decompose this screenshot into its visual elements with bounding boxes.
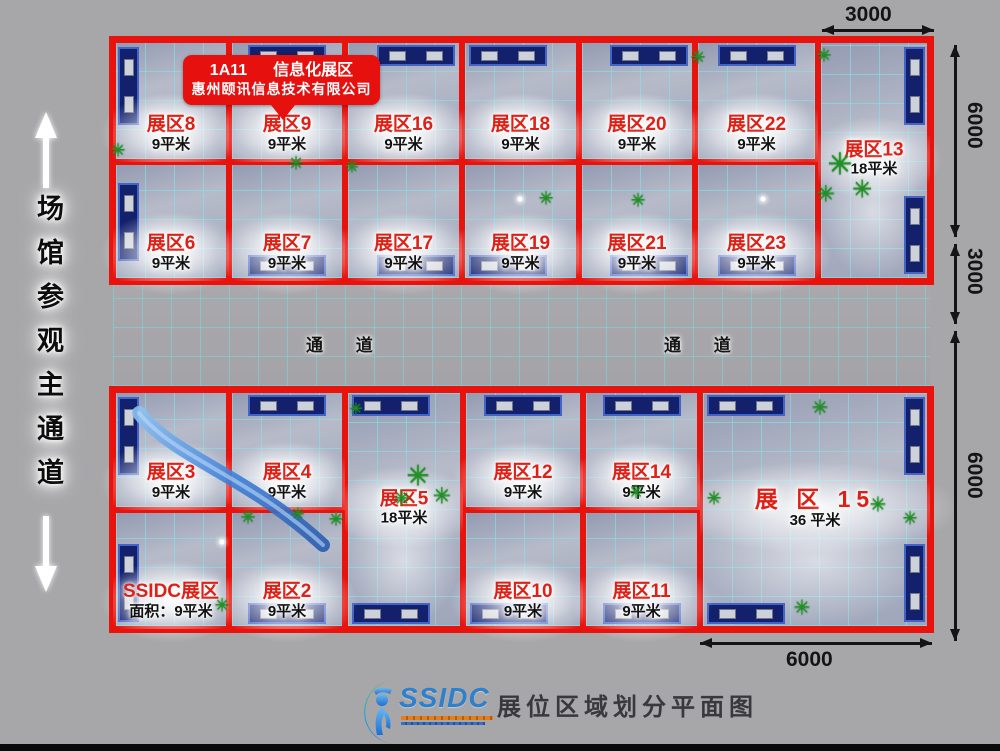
booth-area-label: 18平米 <box>348 510 460 528</box>
booth-label-group: 展区179平米 <box>348 233 459 273</box>
desk-furniture <box>904 47 925 125</box>
monitor-icon <box>124 409 134 426</box>
booth-name-label: 展 区 15 <box>703 486 927 512</box>
light-spot <box>518 197 523 202</box>
monitor-icon <box>622 51 639 61</box>
monitor-icon <box>426 51 443 61</box>
booth-label-group: 展区199平米 <box>465 233 576 273</box>
monitor-icon <box>481 51 498 61</box>
booth-area-label: 9平米 <box>586 603 697 621</box>
desk-furniture <box>469 45 547 66</box>
dimension-right-top: 6000 <box>962 102 986 149</box>
booth-name-label: 展区2 <box>232 581 342 603</box>
booth-zone-4: 展区49平米 <box>229 390 345 510</box>
booth-name-label: 展区17 <box>348 233 459 255</box>
booth-name-label: SSIDC展区 <box>116 581 226 603</box>
dimension-arrow-right-top <box>954 45 957 237</box>
desk-furniture <box>707 603 785 624</box>
aisle-label-right: 通 道 <box>664 331 745 356</box>
monitor-icon <box>659 51 676 61</box>
booth-zone-21: 展区219平米 <box>579 162 695 281</box>
light-spot <box>761 197 766 202</box>
booth-area-label: 9平米 <box>582 255 692 273</box>
booth-area-label: 9平米 <box>116 484 226 502</box>
booth-label-group: 展 区 1536 平米 <box>703 486 927 530</box>
booth-zone-22: 展区229平米 <box>695 40 818 162</box>
monitor-icon <box>401 401 418 411</box>
booth-name-label: 展区7 <box>232 233 342 255</box>
booth-zone-10: 展区109平米 <box>463 510 583 629</box>
callout-heading: 1A11 信息化展区 <box>210 61 353 81</box>
booth-zone-17: 展区179平米 <box>345 162 462 281</box>
booth-label-group: 展区518平米 <box>348 488 460 528</box>
monitor-icon <box>910 208 920 225</box>
booth-zone-19: 展区199平米 <box>462 162 579 281</box>
booth-zone-7: 展区79平米 <box>229 162 345 281</box>
booth-area-label: 9平米 <box>698 255 815 273</box>
central-aisle <box>113 285 930 386</box>
booth-label-group: 展区39平米 <box>116 462 226 502</box>
desk-furniture <box>352 395 430 416</box>
booth-name-label: 展区6 <box>116 233 226 255</box>
callout-zone-name: 信息化展区 <box>273 61 353 81</box>
booth-name-label: 展区5 <box>348 488 460 510</box>
dimension-bottom-width: 6000 <box>786 648 833 672</box>
booth-area-label: 9平米 <box>116 136 226 154</box>
booth-zone-20: 展区209平米 <box>579 40 695 162</box>
booth-area-label: 9平米 <box>116 255 226 273</box>
monitor-icon <box>719 401 736 411</box>
desk-furniture <box>610 45 688 66</box>
dimension-right-middle: 3000 <box>962 248 986 295</box>
booth-name-label: 展区3 <box>116 462 226 484</box>
booth-label-group: 展区89平米 <box>116 114 226 154</box>
main-aisle-label: 场馆参观主通道 <box>26 194 68 502</box>
monitor-icon <box>719 609 736 619</box>
booth-area-label: 9平米 <box>348 136 459 154</box>
booth-zone-13: 展区1318平米 <box>818 40 930 281</box>
booth-area-label: 9平米 <box>232 484 342 502</box>
booth-zone-18: 展区189平米 <box>462 40 579 162</box>
monitor-icon <box>496 401 513 411</box>
booth-zone-5: 展区518平米 <box>345 390 463 629</box>
booth-label-group: 展区119平米 <box>586 581 697 621</box>
monitor-icon <box>615 401 632 411</box>
booth-name-label: 展区18 <box>465 114 576 136</box>
booth-zone-23: 展区239平米 <box>695 162 818 281</box>
booth-zone-15: 展 区 1536 平米 <box>700 390 930 629</box>
callout-company-name: 惠州颐讯信息技术有限公司 <box>192 81 372 99</box>
booth-area-label: 18平米 <box>821 161 927 179</box>
booth-area-label: 9平米 <box>348 255 459 273</box>
desk-furniture <box>904 196 925 274</box>
desk-furniture <box>603 395 681 416</box>
desk-furniture <box>377 45 455 66</box>
monitor-icon <box>910 409 920 426</box>
ssidc-logo-icon <box>356 677 404 747</box>
booth-area-label: 9平米 <box>465 136 576 154</box>
booth-area-label: 9平米 <box>466 484 580 502</box>
booth-name-label: 展区12 <box>466 462 580 484</box>
logo-tagline <box>401 716 493 725</box>
booth-label-group: 展区1318平米 <box>821 139 927 179</box>
booth-area-label: 9平米 <box>232 136 342 154</box>
dimension-arrow-top <box>822 29 934 32</box>
monitor-icon <box>730 51 747 61</box>
up-arrow-icon <box>33 112 59 188</box>
booth-name-label: 展区16 <box>348 114 459 136</box>
booth-label-group: 展区49平米 <box>232 462 342 502</box>
booth-label-group: 展区219平米 <box>582 233 692 273</box>
booth-name-label: 展区21 <box>582 233 692 255</box>
desk-furniture <box>352 603 430 624</box>
booth-label-group: 展区189平米 <box>465 114 576 154</box>
booth-name-label: 展区19 <box>465 233 576 255</box>
monitor-icon <box>389 51 406 61</box>
booth-label-group: 展区239平米 <box>698 233 815 273</box>
booth-name-label: 展区8 <box>116 114 226 136</box>
monitor-icon <box>124 59 134 76</box>
booth-area-label: 9平米 <box>465 255 576 273</box>
ssidc-logo-text: SSIDC <box>399 682 490 714</box>
monitor-icon <box>767 51 784 61</box>
booth-zone-2: 展区29平米 <box>229 510 345 629</box>
booth-ssidc-zone: SSIDC展区面积：9平米 <box>113 510 229 629</box>
monitor-icon <box>518 51 535 61</box>
bottom-border-strip <box>0 744 1000 751</box>
monitor-icon <box>652 401 669 411</box>
monitor-icon <box>910 59 920 76</box>
light-spot <box>220 540 225 545</box>
booth-zone-3: 展区39平米 <box>113 390 229 510</box>
desk-furniture <box>718 45 796 66</box>
monitor-icon <box>910 96 920 113</box>
booth-area-label: 面积：9平米 <box>116 603 226 621</box>
floor-plan-image: 通 道 通 道 展区89平米展区99平米展区169平米展区189平米展区209平… <box>0 0 1000 751</box>
booth-zone-12: 展区129平米 <box>463 390 583 510</box>
booth-name-label: 展区10 <box>466 581 580 603</box>
booth-zone-11: 展区119平米 <box>583 510 700 629</box>
booth-area-label: 9平米 <box>698 136 815 154</box>
booth-name-label: 展区23 <box>698 233 815 255</box>
desk-furniture <box>904 544 925 622</box>
booth-area-label: 9平米 <box>232 255 342 273</box>
monitor-icon <box>756 401 773 411</box>
callout-booth-code: 1A11 <box>210 61 247 81</box>
monitor-icon <box>364 609 381 619</box>
booth-area-label: 9平米 <box>466 603 580 621</box>
monitor-icon <box>533 401 550 411</box>
monitor-icon <box>364 401 381 411</box>
monitor-icon <box>756 609 773 619</box>
dimension-right-bottom: 6000 <box>962 452 986 499</box>
aisle-label-left: 通 道 <box>306 331 387 356</box>
monitor-icon <box>910 556 920 573</box>
booth-name-label: 展区13 <box>821 139 927 161</box>
monitor-icon <box>297 401 314 411</box>
page-title: 展位区域划分平面图 <box>497 687 758 722</box>
booth-area-label: 36 平米 <box>703 512 927 530</box>
booth-zone-6: 展区69平米 <box>113 162 229 281</box>
booth-label-group: 展区109平米 <box>466 581 580 621</box>
desk-furniture <box>707 395 785 416</box>
monitor-icon <box>910 593 920 610</box>
monitor-icon <box>260 401 277 411</box>
dimension-arrow-right-middle <box>954 244 957 324</box>
booth-name-label: 展区22 <box>698 114 815 136</box>
booth-name-label: 展区4 <box>232 462 342 484</box>
booth-name-label: 展区11 <box>586 581 697 603</box>
booth-name-label: 展区20 <box>582 114 692 136</box>
dimension-top-width: 3000 <box>845 3 892 27</box>
booth-label-group: SSIDC展区面积：9平米 <box>116 581 226 621</box>
booth-label-group: 展区69平米 <box>116 233 226 273</box>
dimension-arrow-right-bottom <box>954 331 957 641</box>
monitor-icon <box>124 195 134 212</box>
monitor-icon <box>910 245 920 262</box>
booth-label-group: 展区99平米 <box>232 114 342 154</box>
monitor-icon <box>401 609 418 619</box>
booth-callout: 1A11 信息化展区 惠州颐讯信息技术有限公司 <box>183 55 380 105</box>
booth-label-group: 展区169平米 <box>348 114 459 154</box>
booth-label-group: 展区79平米 <box>232 233 342 273</box>
booth-area-label: 9平米 <box>582 136 692 154</box>
booth-area-label: 9平米 <box>232 603 342 621</box>
booth-label-group: 展区209平米 <box>582 114 692 154</box>
down-arrow-icon <box>33 516 59 592</box>
booth-label-group: 展区129平米 <box>466 462 580 502</box>
desk-furniture <box>484 395 562 416</box>
booth-label-group: 展区29平米 <box>232 581 342 621</box>
booth-label-group: 展区229平米 <box>698 114 815 154</box>
desk-furniture <box>248 395 326 416</box>
dimension-arrow-bottom <box>700 642 932 645</box>
